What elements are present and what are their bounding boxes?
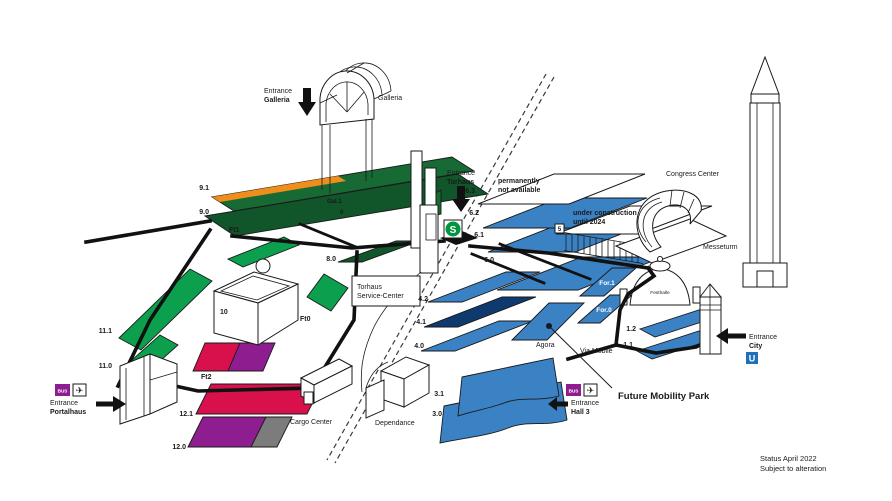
- label-hall-11-0: 11.0: [99, 363, 112, 370]
- label-hall-8-0: 8.0: [326, 256, 336, 263]
- label-hall-11-1: 11.1: [99, 328, 112, 335]
- portalhaus-wall-west: [120, 354, 150, 424]
- label-gal-1: Gal.1: [327, 199, 342, 205]
- label-hall-12-1: 12.1: [179, 411, 193, 418]
- label-forum-1: For.1: [599, 280, 615, 287]
- label-galleria: Galleria: [378, 95, 402, 102]
- cargo-annex: [304, 392, 313, 404]
- portalhaus-bus-label: BUS: [58, 389, 68, 394]
- label-hall-6-0: 6.0: [484, 257, 494, 264]
- entrance-city-line2: City: [749, 343, 762, 350]
- entrance-torhaus-line2: Torhaus: [447, 179, 474, 186]
- messeturm-base-notch: [757, 271, 773, 287]
- label-torhaus-service-line2: Service-Center: [357, 293, 404, 300]
- label-torhaus-service-line1: Torhaus: [357, 284, 382, 291]
- label-festhalle: Festhalle: [650, 290, 670, 296]
- city-tower-body: [700, 297, 721, 354]
- label-hall-3-1: 3.1: [434, 391, 444, 398]
- label-hall-4-0: 4.0: [414, 343, 424, 350]
- walkway-west: [86, 221, 210, 242]
- label-hall-1-1: 1.1: [623, 342, 633, 349]
- label-agora: Agora: [536, 342, 555, 349]
- dependance-building: [366, 357, 429, 418]
- festhalle-cupola: [650, 261, 670, 271]
- festhalle-tower-right: [693, 287, 700, 303]
- entrance-galleria-line2: Galleria: [264, 97, 290, 104]
- label-congress-center: Congress Center: [666, 171, 720, 178]
- messeturm-pyramid: [751, 57, 779, 94]
- note-permanently-line1: permanently: [498, 178, 540, 185]
- city-tower-top: [700, 284, 721, 297]
- label-future-mobility-park: Future Mobility Park: [618, 391, 710, 402]
- label-hall-6-3: 6.3: [465, 188, 475, 195]
- status-note-line1: Status April 2022: [760, 454, 817, 463]
- city-tower-building: [700, 284, 721, 354]
- hall-ft0: [307, 274, 348, 311]
- label-cargo-center: Cargo Center: [290, 419, 333, 426]
- ubahn-letter: U: [749, 354, 756, 364]
- messeturm-building: [743, 57, 787, 287]
- label-hall-ft0: Ft0: [300, 316, 311, 323]
- entrance-city-line1: Entrance: [749, 334, 777, 341]
- festhalle-knob: [658, 257, 663, 262]
- label-hall-12-0: 12.0: [172, 444, 186, 451]
- label-via-mobile: Via Mobile: [580, 348, 613, 355]
- label-hall-ft1: Ft1: [229, 227, 240, 234]
- portalhaus-wall-east: [150, 354, 177, 414]
- hall-10-building: [214, 259, 298, 345]
- galleria-down-arrow-icon: [298, 88, 316, 116]
- label-hall-ft2: Ft2: [201, 374, 212, 381]
- sbahn-letter: S: [450, 225, 457, 236]
- label-hall-3-0: 3.0: [432, 411, 442, 418]
- label-hall-10: 10: [220, 309, 228, 316]
- label-hall-6-1: 6.1: [474, 232, 484, 239]
- label-messeturm: Messeturm: [703, 244, 738, 251]
- cargo-center-building: [301, 359, 352, 404]
- label-forum-0: For.0: [596, 307, 612, 314]
- entrance-torhaus-line1: Entrance: [447, 170, 475, 177]
- site-map-canvas: BUS ✈ BUS ✈ S U 9.1 9.0 11.1 11.0 12.1 1…: [0, 0, 892, 501]
- label-hall-9-1: 9.1: [199, 185, 209, 192]
- status-note-line2: Subject to alteration: [760, 464, 826, 473]
- entrance-hall3-line2: Hall 3: [571, 409, 590, 416]
- label-hall-1-2: 1.2: [626, 326, 636, 333]
- note-permanently-line2: not available: [498, 187, 541, 194]
- portalhaus-plane-glyph: ✈: [76, 386, 84, 396]
- messeturm-shaft: [750, 103, 780, 263]
- torhaus-service-center-box: [352, 276, 420, 306]
- portalhaus-building: [120, 354, 177, 424]
- note-construction-line1: under construction: [573, 210, 637, 217]
- label-hall-4-2: 4.2: [418, 296, 428, 303]
- label-hall-9-0: 9.0: [199, 209, 209, 216]
- entrance-portalhaus-line1: Entrance: [50, 400, 78, 407]
- hall-10-silo: [256, 259, 270, 273]
- hall3-bus-label: BUS: [569, 389, 579, 394]
- messeturm-collar: [751, 94, 779, 103]
- label-dependance: Dependance: [375, 420, 415, 427]
- hall3-plane-glyph: ✈: [587, 386, 595, 396]
- messe-site-map: BUS ✈ BUS ✈ S U 9.1 9.0 11.1 11.0 12.1 1…: [0, 0, 892, 501]
- label-hall-6-2: 6.2: [469, 210, 479, 217]
- entrance-galleria-line1: Entrance: [264, 88, 292, 95]
- entrance-hall3-line1: Entrance: [571, 400, 599, 407]
- note-construction-line2: until 2024: [573, 219, 605, 226]
- future-mobility-leader-line: [549, 326, 612, 388]
- entrance-portalhaus-line2: Portalhaus: [50, 409, 86, 416]
- torhaus-lower-block: [420, 205, 438, 273]
- label-hall-4-1: 4.1: [416, 319, 426, 326]
